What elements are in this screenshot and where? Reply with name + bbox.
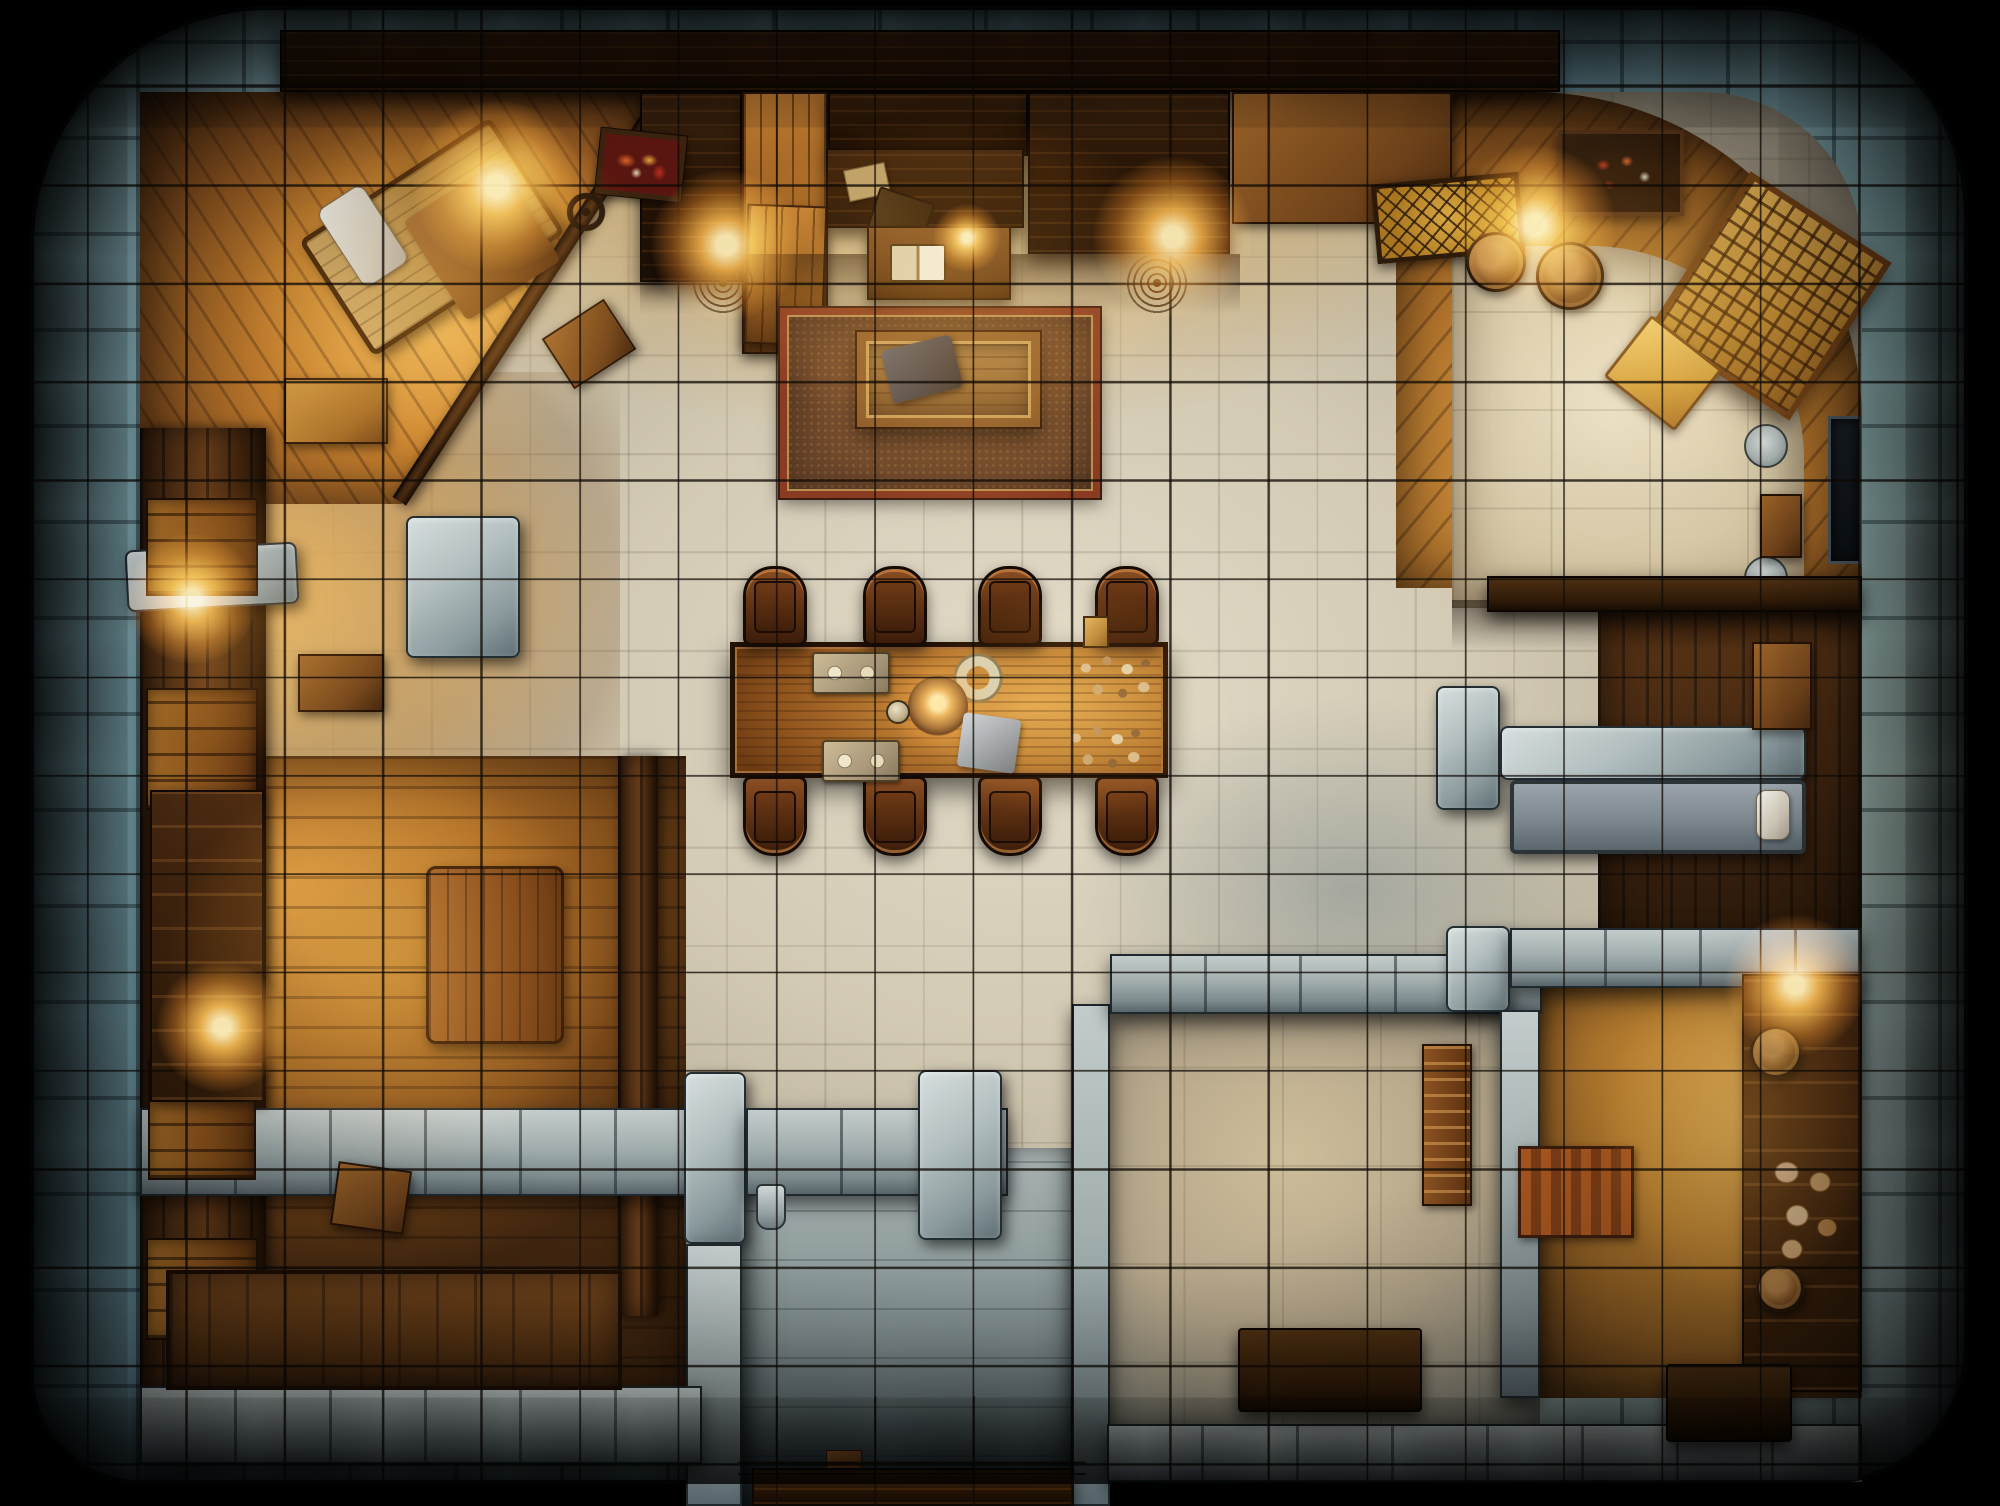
table-cloth <box>957 712 1022 774</box>
dark-bench <box>1666 1364 1792 1442</box>
corridor-pier-left <box>684 1072 746 1244</box>
study-barrel <box>1466 232 1526 292</box>
wood-door-slab <box>426 866 564 1044</box>
stone-pier-blue <box>1446 926 1510 1012</box>
bar-counter-mid <box>828 92 1028 156</box>
open-book <box>890 244 946 282</box>
chair <box>978 566 1042 646</box>
right-stone-ledge <box>1500 726 1806 780</box>
wall-sconce <box>756 1184 786 1230</box>
food-scatter <box>1072 650 1164 710</box>
gray-bed-pillow <box>1756 790 1790 840</box>
study-chest <box>1760 494 1802 558</box>
corridor-threshold <box>752 1468 1074 1506</box>
stained-painting-red <box>595 128 687 203</box>
study-plate <box>1744 424 1788 468</box>
study-bench <box>1487 576 1862 612</box>
serving-tray <box>822 740 900 782</box>
chair <box>743 566 807 646</box>
small-mug <box>886 700 910 724</box>
hall-stone-pier <box>406 516 520 658</box>
clay-pot <box>1756 1264 1804 1312</box>
barrel <box>1750 1026 1802 1078</box>
right-stone-pier <box>1436 686 1500 810</box>
plank-bed <box>166 1270 622 1390</box>
bottom-left-partition-wall <box>618 756 658 1316</box>
entry-corridor-floor <box>738 1148 1086 1506</box>
battle-map <box>0 0 2000 1506</box>
striped-mat <box>1518 1146 1634 1238</box>
chandelier-ring <box>556 182 616 242</box>
food-scatter <box>1062 720 1154 780</box>
study-barrel <box>1536 242 1604 310</box>
left-cabinet <box>284 378 388 444</box>
chair <box>743 776 807 856</box>
ladder-rack <box>1422 1044 1472 1206</box>
chair <box>978 776 1042 856</box>
chair <box>1095 776 1159 856</box>
serving-tray <box>812 652 890 694</box>
right-dresser <box>1752 642 1812 730</box>
art-tray <box>1558 130 1684 216</box>
crate <box>330 1161 412 1235</box>
chair <box>863 776 927 856</box>
candle-plate <box>908 676 968 736</box>
corridor-column-left <box>686 1244 742 1506</box>
wall-shelf <box>146 498 258 596</box>
dark-wall-panel <box>1828 416 1862 564</box>
tall-wardrobe <box>150 790 264 1102</box>
food-sacks <box>1762 1146 1850 1266</box>
bar-counter-right <box>1028 92 1230 254</box>
dark-chest <box>1238 1328 1422 1412</box>
chair <box>863 566 927 646</box>
top-carved-beam <box>280 30 1560 92</box>
left-chest <box>298 654 384 712</box>
bottom-wall-slabs-left <box>140 1386 702 1464</box>
gold-box <box>1083 616 1109 648</box>
iron-rosette-left <box>690 250 756 316</box>
iron-rosette-right <box>1124 250 1190 316</box>
corridor-pier-mid <box>918 1070 1002 1240</box>
corridor-column-right <box>1072 1004 1110 1506</box>
